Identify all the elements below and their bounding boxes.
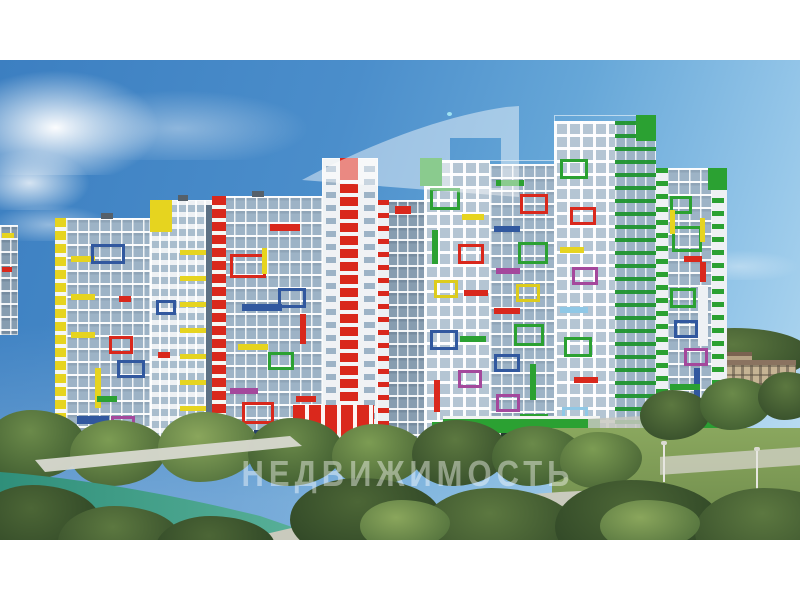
- watermark-spark: [447, 112, 452, 116]
- architectural-render-photo: НЕДВИЖИМОСТЬ: [0, 0, 800, 600]
- watermark-swoosh: [302, 106, 519, 197]
- letterbox-bottom: [0, 540, 800, 600]
- letterbox-top: [0, 0, 800, 60]
- watermark-text: НЕДВИЖИМОСТЬ: [208, 453, 608, 495]
- photo-area: НЕДВИЖИМОСТЬ: [0, 60, 800, 540]
